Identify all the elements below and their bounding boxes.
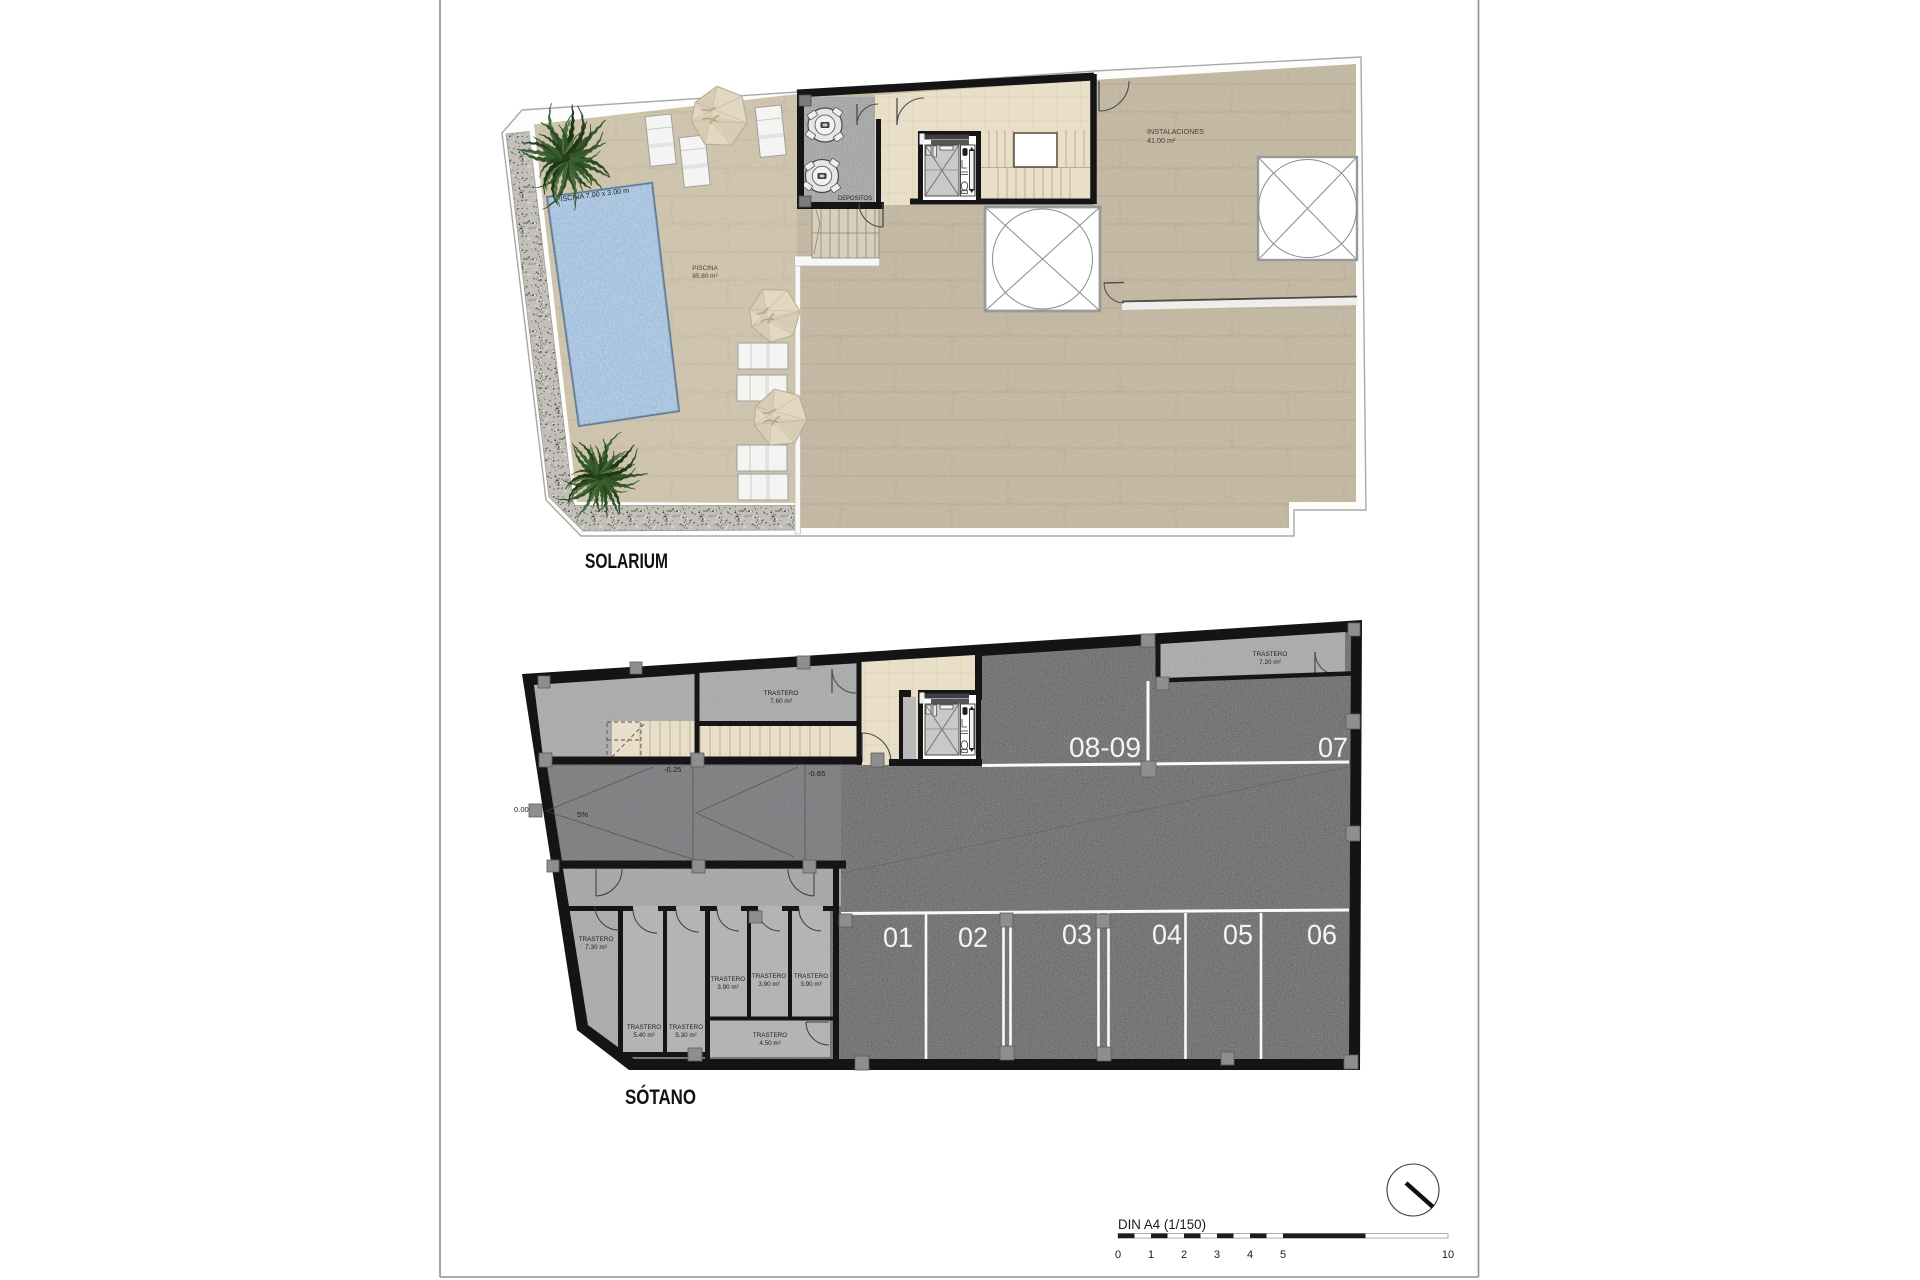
svg-text:3.90 m²: 3.90 m² bbox=[758, 981, 779, 988]
svg-text:05: 05 bbox=[1223, 919, 1253, 950]
svg-text:TRASTERO: TRASTERO bbox=[752, 973, 786, 980]
svg-text:TRASTERO: TRASTERO bbox=[794, 973, 828, 980]
svg-text:07: 07 bbox=[1318, 732, 1348, 763]
svg-text:10: 10 bbox=[1442, 1249, 1454, 1261]
svg-text:5: 5 bbox=[1280, 1249, 1286, 1261]
svg-text:04: 04 bbox=[1152, 919, 1182, 950]
svg-text:PISCINA: PISCINA bbox=[692, 265, 718, 272]
svg-text:TRASTERO: TRASTERO bbox=[764, 690, 799, 697]
svg-text:03: 03 bbox=[1062, 919, 1092, 950]
svg-text:SÓTANO: SÓTANO bbox=[625, 1084, 696, 1109]
svg-text:-0.65: -0.65 bbox=[808, 769, 825, 778]
svg-text:TRASTERO: TRASTERO bbox=[627, 1024, 661, 1031]
svg-text:02: 02 bbox=[958, 922, 988, 953]
svg-text:DIN A4 (1/150): DIN A4 (1/150) bbox=[1118, 1217, 1206, 1232]
svg-text:TRASTERO: TRASTERO bbox=[753, 1032, 787, 1039]
svg-text:1: 1 bbox=[1148, 1249, 1154, 1261]
svg-text:5.40 m²: 5.40 m² bbox=[633, 1032, 654, 1039]
svg-text:08-09: 08-09 bbox=[1069, 732, 1141, 763]
svg-text:3.90 m²: 3.90 m² bbox=[800, 981, 821, 988]
svg-text:5.30 m²: 5.30 m² bbox=[675, 1032, 696, 1039]
svg-text:01: 01 bbox=[883, 922, 913, 953]
svg-text:TRASTERO: TRASTERO bbox=[711, 976, 745, 983]
svg-text:3.90 m²: 3.90 m² bbox=[717, 984, 738, 991]
svg-text:7.60 m²: 7.60 m² bbox=[770, 698, 792, 705]
svg-text:INSTALACIONES: INSTALACIONES bbox=[1147, 127, 1204, 136]
svg-text:TRASTERO: TRASTERO bbox=[579, 936, 614, 943]
svg-text:TRASTERO: TRASTERO bbox=[1253, 651, 1288, 658]
svg-text:4.50 m²: 4.50 m² bbox=[759, 1040, 780, 1047]
svg-text:SOLARIUM: SOLARIUM bbox=[585, 549, 668, 573]
svg-text:06: 06 bbox=[1307, 919, 1337, 950]
svg-text:41.00 m²: 41.00 m² bbox=[1147, 136, 1176, 145]
svg-text:TRASTERO: TRASTERO bbox=[669, 1024, 703, 1031]
svg-text:DEPOSITOS: DEPOSITOS bbox=[838, 195, 872, 202]
svg-text:4: 4 bbox=[1247, 1249, 1253, 1261]
svg-text:3: 3 bbox=[1214, 1249, 1220, 1261]
svg-text:-0.25: -0.25 bbox=[664, 765, 681, 774]
svg-text:5%: 5% bbox=[577, 810, 588, 819]
svg-text:2: 2 bbox=[1181, 1249, 1187, 1261]
svg-text:7.30 m²: 7.30 m² bbox=[585, 944, 607, 951]
svg-text:0.00: 0.00 bbox=[514, 805, 529, 814]
svg-text:7.20 m²: 7.20 m² bbox=[1259, 659, 1281, 666]
svg-text:0: 0 bbox=[1115, 1249, 1121, 1261]
svg-text:85.80 m²: 85.80 m² bbox=[692, 273, 717, 280]
